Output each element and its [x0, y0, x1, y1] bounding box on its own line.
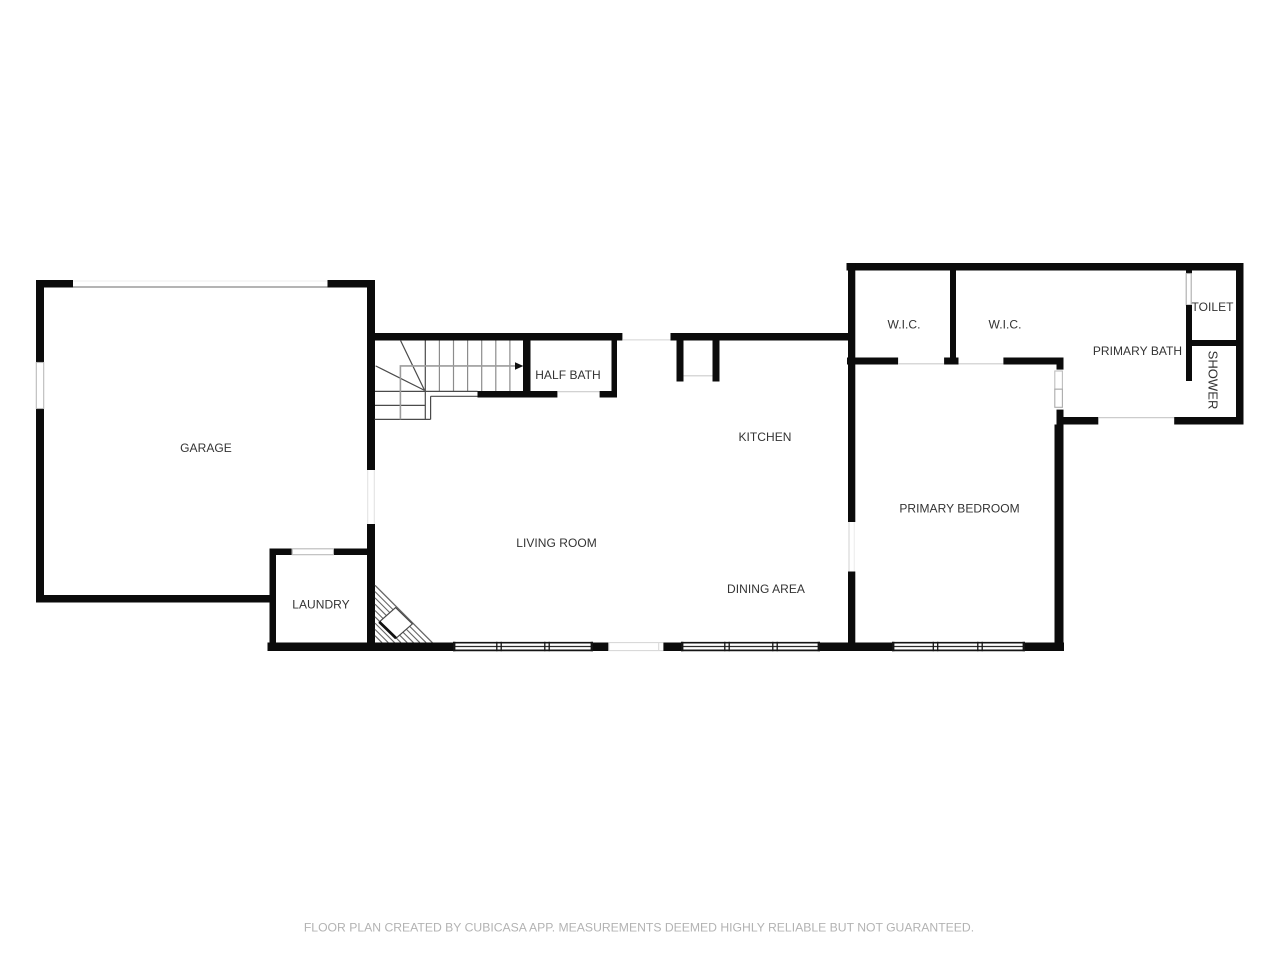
svg-text:GARAGE: GARAGE: [180, 441, 232, 455]
svg-text:FLOOR PLAN CREATED BY CUBICASA: FLOOR PLAN CREATED BY CUBICASA APP. MEAS…: [304, 921, 974, 935]
svg-text:SHOWER: SHOWER: [1206, 351, 1221, 410]
svg-text:HALF BATH: HALF BATH: [535, 368, 601, 382]
svg-text:LIVING ROOM: LIVING ROOM: [516, 536, 597, 550]
svg-text:DINING AREA: DINING AREA: [727, 582, 805, 596]
svg-text:PRIMARY BEDROOM: PRIMARY BEDROOM: [899, 502, 1019, 516]
svg-text:KITCHEN: KITCHEN: [738, 430, 791, 444]
svg-text:TOILET: TOILET: [1191, 300, 1234, 314]
svg-text:W.I.C.: W.I.C.: [989, 318, 1022, 332]
svg-text:W.I.C.: W.I.C.: [888, 318, 921, 332]
svg-text:LAUNDRY: LAUNDRY: [292, 598, 349, 612]
svg-text:PRIMARY BATH: PRIMARY BATH: [1093, 344, 1182, 358]
